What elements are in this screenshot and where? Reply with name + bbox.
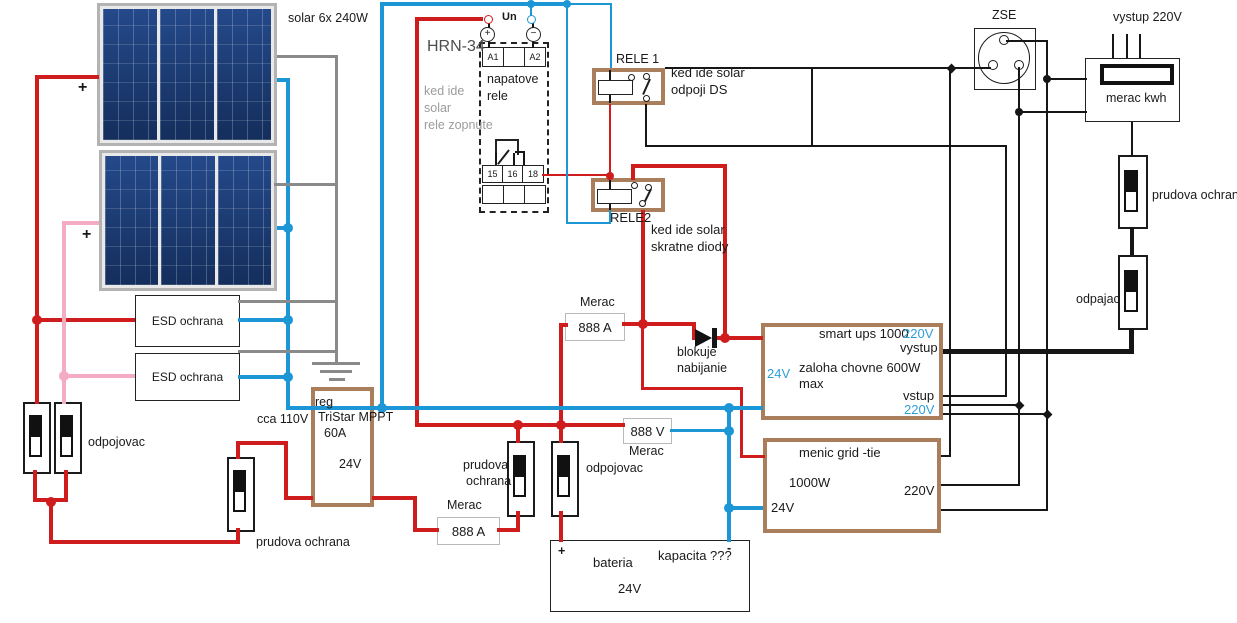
wire xyxy=(62,374,135,378)
merac-bottom-label: Merac xyxy=(447,499,482,513)
rele1-note-2: odpoji DS xyxy=(671,83,727,97)
breaker-toggle xyxy=(233,470,246,490)
wire xyxy=(943,349,1134,354)
junction-dot xyxy=(527,0,535,8)
wire xyxy=(380,2,384,408)
wire xyxy=(566,222,611,224)
breaker-toggle xyxy=(513,475,526,497)
wire xyxy=(941,509,1048,511)
breaker-toggle xyxy=(557,475,570,497)
junction-dot xyxy=(513,420,523,430)
hrn34-terminal-a1: A1 xyxy=(482,47,504,67)
wire xyxy=(943,404,1020,406)
breaker-toggle xyxy=(1124,170,1138,190)
wire xyxy=(413,528,439,532)
prudova-bottom-left-label: prudova ochrana xyxy=(256,536,350,550)
junction-diamond xyxy=(1043,410,1053,420)
wire xyxy=(645,104,647,147)
un-plus-terminal xyxy=(484,15,493,24)
junction-dot xyxy=(724,503,734,513)
kwh-meter-display xyxy=(1100,64,1174,85)
inverter-220v: 220V xyxy=(904,484,934,498)
solar-cell xyxy=(161,156,214,285)
wire xyxy=(1006,40,1048,42)
wire xyxy=(1018,67,1020,486)
blokuje-label-2: nabijanie xyxy=(677,362,727,376)
breaker-toggle xyxy=(1124,270,1138,290)
wire xyxy=(238,300,338,303)
wire xyxy=(335,55,338,364)
battery-kapacita: kapacita ??? xyxy=(658,549,732,563)
prudova-right-label: prudova ochrana xyxy=(1152,189,1237,203)
wire xyxy=(238,375,288,379)
wire xyxy=(513,153,515,165)
rele1-coil xyxy=(598,80,633,95)
rele1-note-1: ked ide solar xyxy=(671,66,745,80)
inverter-24v: 24V xyxy=(771,501,794,515)
wire xyxy=(670,429,730,432)
wire xyxy=(641,325,644,390)
wire xyxy=(274,183,336,186)
wire xyxy=(811,67,813,147)
inverter-name: menic grid -tie xyxy=(799,446,881,460)
solar-cell xyxy=(160,9,214,140)
wire xyxy=(1139,34,1141,58)
hrn34-note-1: ked ide xyxy=(424,85,464,99)
un-minus-terminal xyxy=(527,15,536,24)
rele2-note-1: ked ide solar xyxy=(651,223,725,237)
merac-v-label: Merac xyxy=(629,445,664,459)
solar-cell xyxy=(103,9,157,140)
battery-name: bateria xyxy=(593,556,633,570)
wire xyxy=(62,221,99,225)
wire xyxy=(631,164,727,168)
hrn34-terminal-16: 16 xyxy=(502,165,523,183)
un-label: Un xyxy=(502,11,517,23)
junction-dot xyxy=(32,315,42,325)
breaker-toggle xyxy=(513,455,526,475)
merac-888a-bottom: 888 A xyxy=(437,517,500,545)
wire xyxy=(286,78,290,410)
wire xyxy=(284,441,288,500)
breaker-toggle xyxy=(1124,190,1138,212)
wire xyxy=(943,395,1007,397)
wire xyxy=(641,210,645,327)
junction-dot xyxy=(724,426,734,436)
wire xyxy=(941,455,951,457)
minus-symbol-icon: − xyxy=(526,27,541,42)
prudova-mid-label-1: prudova xyxy=(463,459,508,473)
odpajac-label: odpajac xyxy=(1076,293,1120,307)
junction-dot xyxy=(283,315,293,325)
esd-ochrana-2: ESD ochrana xyxy=(135,353,240,401)
junction-dot xyxy=(556,420,566,430)
wire xyxy=(372,496,417,500)
battery-plus: + xyxy=(558,545,565,559)
wire xyxy=(631,164,635,180)
wire xyxy=(1112,34,1114,58)
junction-dot xyxy=(46,497,56,507)
wire xyxy=(236,441,288,445)
wire xyxy=(515,151,525,153)
hrn34-terminal-mid xyxy=(503,47,525,67)
wire xyxy=(495,153,497,165)
breaker-toggle xyxy=(557,455,570,475)
vystup-220v-label: vystup 220V xyxy=(1113,11,1182,25)
hrn34-spare-cell xyxy=(482,185,504,204)
wire xyxy=(1005,145,1007,397)
solar-panel-bottom xyxy=(99,150,277,291)
junction-dot xyxy=(283,372,293,382)
wire xyxy=(523,151,525,165)
hrn34-title: HRN-34 xyxy=(427,38,485,56)
regulator-label-3: 60A xyxy=(324,427,346,441)
hrn34-note-3: rele zopnute xyxy=(424,119,493,133)
ups-in-voltage-dc: 24V xyxy=(767,367,790,381)
wire xyxy=(609,104,611,177)
wire xyxy=(559,511,563,542)
ground-icon xyxy=(312,362,360,365)
hrn34-body-1: napatove xyxy=(487,73,538,87)
wire xyxy=(566,3,612,5)
junction-dot xyxy=(720,333,730,343)
wire xyxy=(1018,111,1087,113)
junction-dot xyxy=(283,223,293,233)
hrn34-spare-cell xyxy=(524,185,546,204)
wire xyxy=(1131,122,1133,155)
regulator-label-2: TriStar MPPT xyxy=(318,411,393,425)
panel-bottom-plus: + xyxy=(82,226,91,244)
rele1-contact xyxy=(643,95,650,102)
wire xyxy=(740,387,743,458)
wiring-diagram: ESD ochrana ESD ochrana A1 A2 15 16 18 8… xyxy=(0,0,1237,623)
wire xyxy=(610,3,612,68)
ground-icon xyxy=(320,370,352,373)
solar-panel-top xyxy=(97,3,277,146)
wire xyxy=(516,511,520,532)
wire xyxy=(949,67,951,457)
junction-dot xyxy=(1015,108,1023,116)
merac-top-label: Merac xyxy=(580,296,615,310)
rele2-coil xyxy=(597,189,632,204)
wire xyxy=(236,528,240,544)
breaker-toggle xyxy=(60,415,73,435)
wire xyxy=(941,484,1020,486)
wire xyxy=(1130,227,1134,255)
battery-volt: 24V xyxy=(618,582,641,596)
wire xyxy=(380,2,568,6)
breaker-toggle xyxy=(29,415,42,435)
solar-cell xyxy=(217,9,271,140)
ups-zaloha-label: zaloha chovne 600W xyxy=(799,361,920,375)
wire xyxy=(645,145,1007,147)
breaker-toggle xyxy=(60,435,73,457)
solar-cell xyxy=(218,156,271,285)
wire xyxy=(542,174,612,176)
wire xyxy=(415,17,483,21)
junction-dot xyxy=(1043,75,1051,83)
ups-max-label: max xyxy=(799,377,824,391)
solar-label: solar 6x 240W xyxy=(288,12,368,26)
blokuje-label-1: blokuje xyxy=(677,346,717,360)
odpojovac-mid-label: odpojovac xyxy=(586,462,643,476)
odpojovac-left-label: odpojovac xyxy=(88,436,145,450)
junction-dot xyxy=(563,0,571,8)
wire xyxy=(413,496,417,532)
inverter-power: 1000W xyxy=(789,476,830,490)
junction-diamond xyxy=(1015,401,1025,411)
wire xyxy=(284,496,313,500)
junction-dot xyxy=(606,172,614,180)
wire xyxy=(559,323,568,327)
breaker-toggle xyxy=(29,435,42,457)
ups-in-voltage-ac: 220V xyxy=(904,403,934,417)
ups-name: smart ups 1000 xyxy=(819,327,909,341)
zse-label: ZSE xyxy=(992,9,1016,23)
wire xyxy=(1046,78,1087,80)
breaker-toggle xyxy=(1124,290,1138,312)
hrn34-note-2: solar xyxy=(424,102,451,116)
hrn34-spare-cell xyxy=(503,185,525,204)
regulator-label-1: reg xyxy=(315,396,333,410)
wire xyxy=(415,17,419,427)
wire xyxy=(943,413,1048,415)
junction-dot xyxy=(59,371,69,381)
panel-top-plus: + xyxy=(78,79,87,97)
wire xyxy=(238,350,338,353)
wire xyxy=(35,318,135,322)
kwh-meter-label: merac kwh xyxy=(1106,92,1166,106)
junction-dot xyxy=(638,319,648,329)
rele1-label: RELE 1 xyxy=(616,53,659,67)
rele2-label: RELE2 xyxy=(610,211,651,225)
rele2-contact xyxy=(631,182,638,189)
ground-icon xyxy=(329,378,345,381)
breaker-toggle xyxy=(233,490,246,512)
rele1-contact xyxy=(628,74,635,81)
hrn34-terminal-18: 18 xyxy=(522,165,544,183)
prudova-mid-label-2: ochrana xyxy=(466,475,511,489)
wire xyxy=(1126,34,1128,58)
cca-110v-label: cca 110V xyxy=(257,413,308,427)
rele2-note-2: skratne diody xyxy=(651,240,728,254)
wire xyxy=(645,322,695,326)
junction-dot xyxy=(724,403,734,413)
wire xyxy=(238,318,288,322)
hrn34-terminal-a2: A2 xyxy=(524,47,546,67)
solar-cell xyxy=(105,156,158,285)
wire xyxy=(277,55,338,58)
wire xyxy=(49,540,240,544)
merac-888v: 888 V xyxy=(623,418,672,444)
hrn34-body-2: rele xyxy=(487,90,508,104)
regulator-label-4: 24V xyxy=(339,458,361,472)
battery-minus: - xyxy=(727,542,731,556)
wire xyxy=(35,75,99,79)
esd-ochrana-1: ESD ochrana xyxy=(135,295,240,347)
wire xyxy=(35,75,39,404)
wire xyxy=(566,3,568,224)
wire xyxy=(740,455,765,458)
merac-888a-top: 888 A xyxy=(565,313,625,341)
ups-out-label: vystup xyxy=(900,341,938,355)
wire xyxy=(641,387,743,390)
hrn34-terminal-15: 15 xyxy=(482,165,503,183)
